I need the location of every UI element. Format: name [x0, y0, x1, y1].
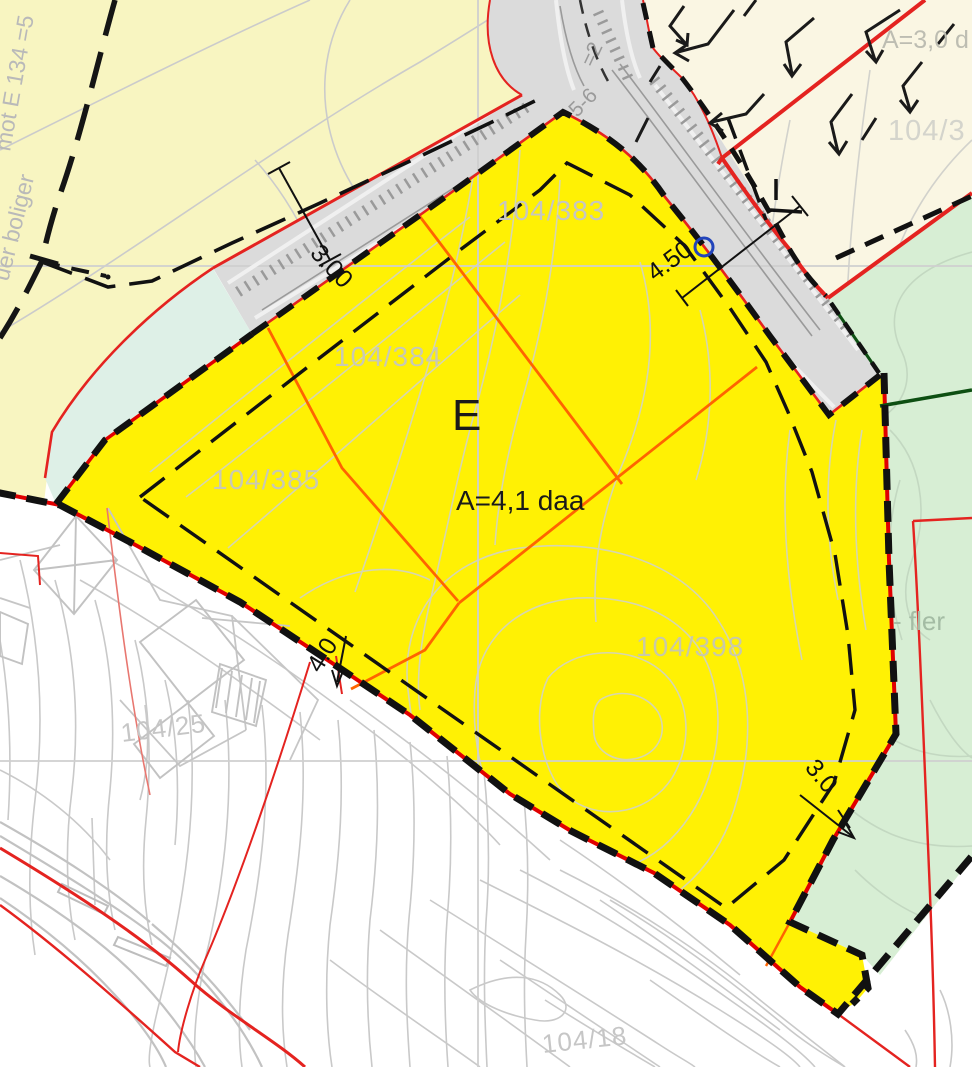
svg-text:104/384: 104/384: [334, 341, 442, 372]
svg-text:104/3: 104/3: [888, 115, 966, 147]
svg-text:A=4,1 daa: A=4,1 daa: [456, 485, 585, 516]
svg-text:- fler: - fler: [893, 606, 945, 636]
svg-text:104/398: 104/398: [636, 631, 744, 662]
svg-text:104/385: 104/385: [212, 464, 320, 495]
svg-text:A=3,0 d: A=3,0 d: [882, 26, 969, 54]
svg-text:104/383: 104/383: [497, 195, 605, 226]
svg-text:E: E: [452, 391, 481, 440]
